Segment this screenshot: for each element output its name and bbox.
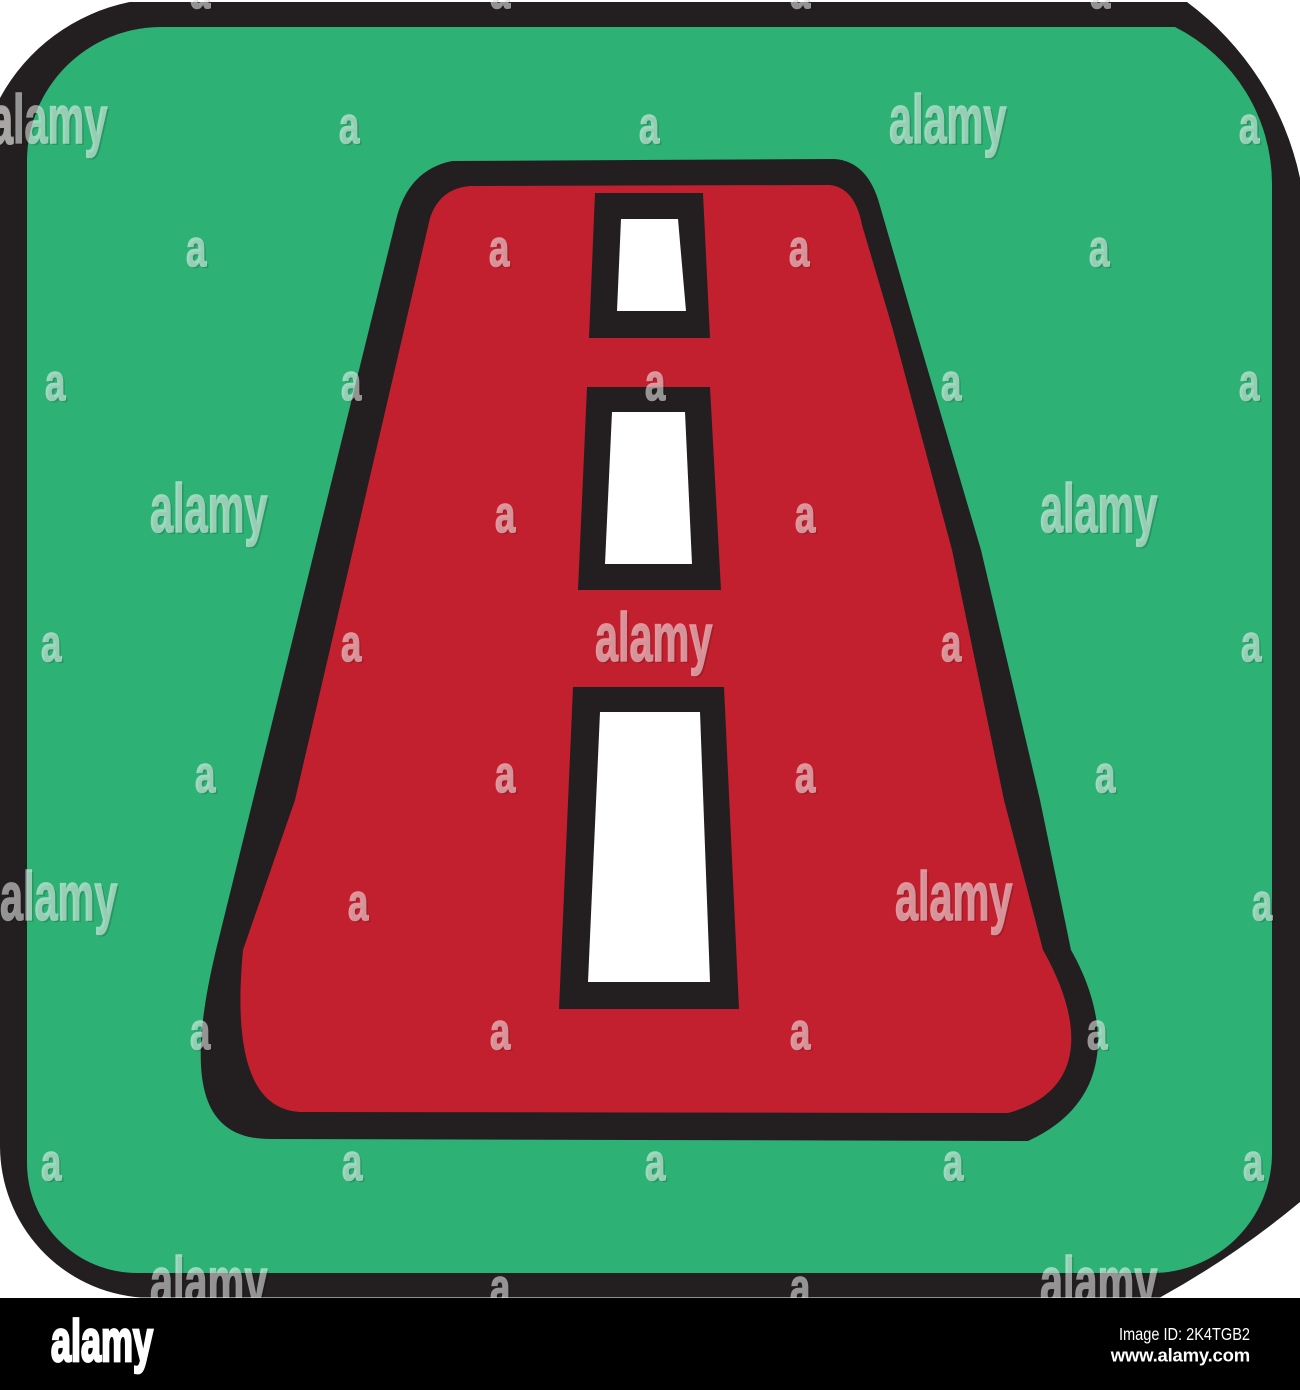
svg-text:alamy: alamy: [51, 1309, 153, 1374]
svg-text:a: a: [342, 1132, 363, 1191]
svg-text:a: a: [339, 95, 360, 154]
svg-text:a: a: [341, 613, 362, 672]
svg-text:a: a: [645, 1132, 666, 1191]
svg-text:alamy: alamy: [895, 858, 1013, 936]
svg-text:a: a: [348, 872, 369, 931]
svg-text:a: a: [795, 484, 816, 543]
svg-text:a: a: [789, 218, 810, 277]
svg-text:a: a: [1239, 95, 1260, 154]
svg-text:a: a: [190, 0, 211, 20]
svg-text:a: a: [1243, 1132, 1264, 1191]
svg-text:a: a: [1241, 613, 1262, 672]
svg-text:a: a: [1090, 0, 1111, 20]
svg-text:www.alamy.com: www.alamy.com: [1110, 1345, 1250, 1366]
svg-text:a: a: [943, 1132, 964, 1191]
svg-text:alamy: alamy: [0, 81, 108, 159]
svg-text:a: a: [639, 95, 660, 154]
svg-text:a: a: [495, 484, 516, 543]
svg-text:a: a: [941, 613, 962, 672]
svg-text:a: a: [490, 0, 511, 20]
svg-text:a: a: [190, 1001, 211, 1060]
svg-text:Image ID: 2K4TGB2: Image ID: 2K4TGB2: [1119, 1324, 1250, 1344]
svg-text:alamy: alamy: [0, 858, 118, 936]
svg-text:a: a: [1089, 218, 1110, 277]
svg-text:a: a: [1252, 872, 1273, 931]
svg-text:a: a: [186, 218, 207, 277]
svg-text:a: a: [1095, 744, 1116, 803]
svg-text:a: a: [1239, 352, 1260, 411]
svg-text:a: a: [941, 352, 962, 411]
svg-text:a: a: [795, 744, 816, 803]
svg-text:a: a: [195, 744, 216, 803]
svg-text:a: a: [790, 0, 811, 20]
svg-text:alamy: alamy: [1040, 470, 1158, 548]
svg-text:a: a: [41, 613, 62, 672]
svg-text:alamy: alamy: [889, 81, 1007, 159]
svg-text:a: a: [41, 1132, 62, 1191]
svg-text:a: a: [1087, 1001, 1108, 1060]
svg-text:a: a: [495, 744, 516, 803]
svg-text:alamy: alamy: [150, 470, 268, 548]
svg-text:alamy: alamy: [595, 599, 713, 677]
svg-text:a: a: [341, 352, 362, 411]
svg-text:a: a: [490, 1001, 511, 1060]
svg-text:a: a: [790, 1001, 811, 1060]
svg-text:a: a: [45, 352, 66, 411]
svg-text:a: a: [0, 82, 13, 160]
svg-text:a: a: [489, 218, 510, 277]
svg-text:a: a: [645, 352, 666, 411]
